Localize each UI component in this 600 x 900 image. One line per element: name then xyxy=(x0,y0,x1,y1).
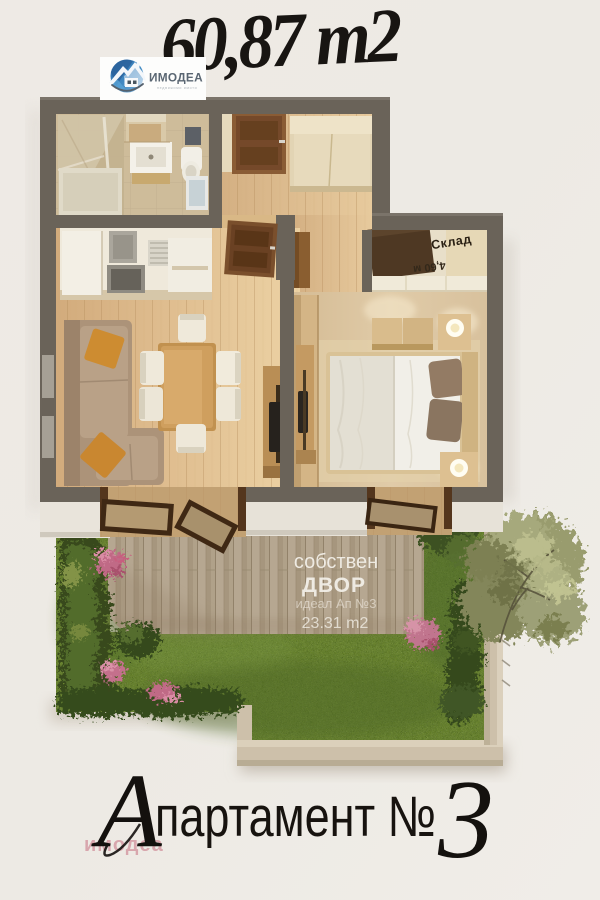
svg-text:ДВОР: ДВОР xyxy=(302,574,366,597)
svg-text:недвижими имоти: недвижими имоти xyxy=(157,86,197,90)
svg-text:идеал Ап №3: идеал Ап №3 xyxy=(295,596,376,611)
svg-text:ИМОДЕА: ИМОДЕА xyxy=(149,71,203,85)
svg-text:23.31 m2: 23.31 m2 xyxy=(302,615,369,632)
svg-text:партамент №: партамент № xyxy=(155,785,436,849)
svg-text:A: A xyxy=(91,752,163,869)
svg-text:собствен: собствен xyxy=(294,551,378,573)
svg-text:3: 3 xyxy=(437,758,494,882)
